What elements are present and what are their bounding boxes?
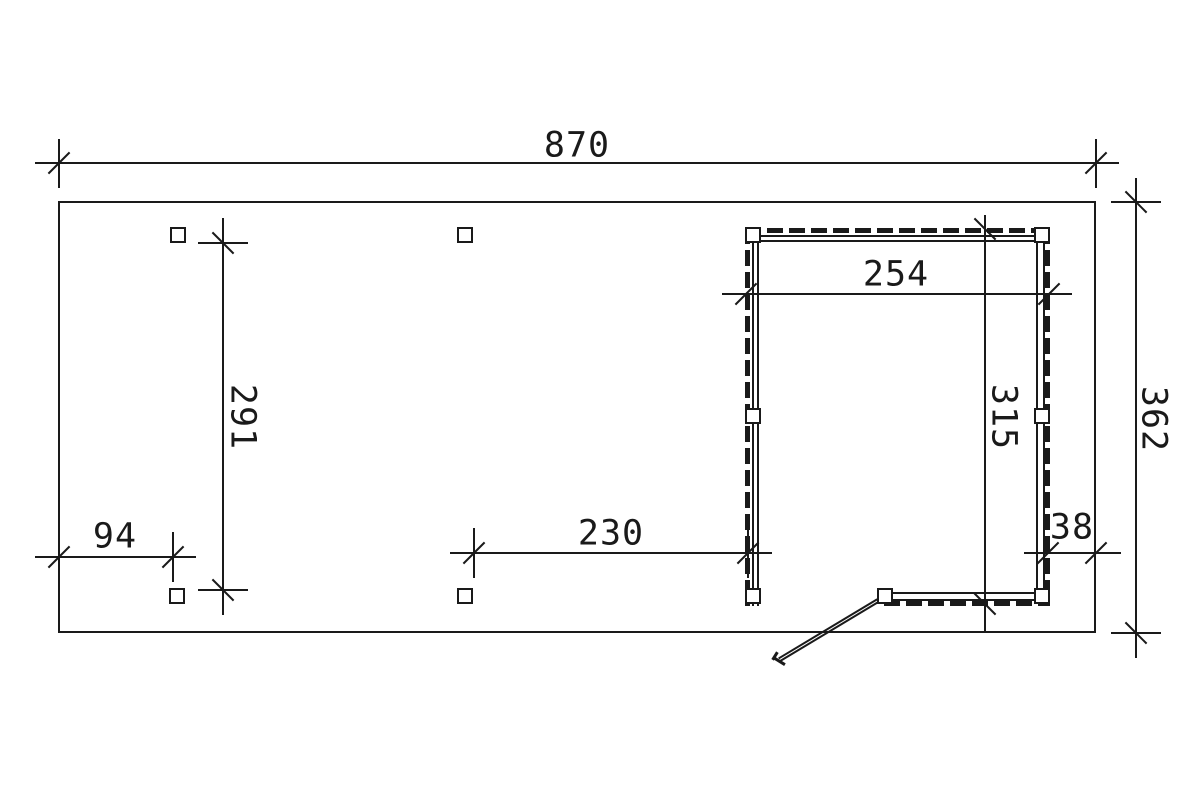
roof-post-bottom-left (169, 588, 185, 604)
roof-post-top-left (170, 227, 186, 243)
shed-wall-bottom (884, 592, 1050, 606)
dim-label-shed-depth: 315 (986, 384, 1021, 450)
shed-post-mid-right (1034, 408, 1050, 424)
dim-label-total-depth: 362 (1136, 386, 1171, 452)
dim-label-total-width: 870 (544, 129, 610, 164)
shed-post-bottom-left (745, 588, 761, 604)
shed-post-bottom-right (1034, 588, 1050, 604)
roof-post-bottom-middle (457, 588, 473, 604)
floor-plan-canvas: 870 362 291 94 230 38 254 315 (0, 0, 1200, 800)
dim-label-middle-span: 230 (578, 517, 644, 552)
carport-outline (58, 201, 1096, 633)
dim-label-left-offset: 94 (93, 520, 137, 555)
dim-label-shed-width: 254 (863, 258, 929, 293)
dim-38-line (1024, 552, 1121, 554)
shed-door-hinge-post (877, 588, 893, 604)
shed-post-mid-left (745, 408, 761, 424)
dim-label-right-offset: 38 (1050, 511, 1094, 546)
shed-post-top-right (1034, 227, 1050, 243)
shed-wall-top (745, 228, 1050, 242)
shed-post-top-left (745, 227, 761, 243)
roof-post-top-middle (457, 227, 473, 243)
dim-label-left-post-span: 291 (225, 384, 260, 450)
